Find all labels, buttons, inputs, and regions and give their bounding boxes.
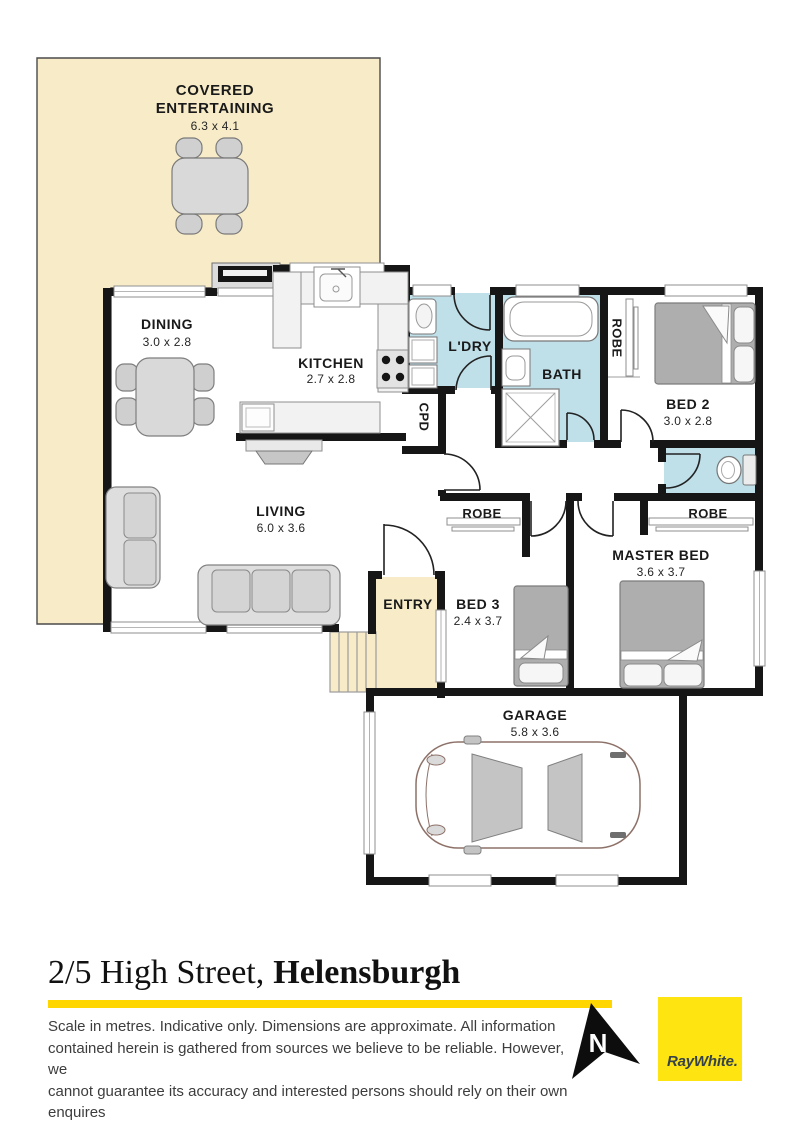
- vanity-icon: [502, 349, 530, 386]
- property-address: 2/5 High Street,Helensburgh: [48, 954, 460, 992]
- disclaimer-line: Scale in metres. Indicative only. Dimens…: [48, 1016, 568, 1038]
- living-dims: 6.0 x 3.6: [257, 521, 306, 535]
- kitchen-sink-icon: [314, 267, 360, 307]
- porch-stairs: [330, 632, 376, 692]
- master-label: MASTER BED: [612, 547, 710, 563]
- bed3-door: [531, 501, 566, 536]
- master-door: [578, 501, 613, 536]
- toilet-icon: [717, 455, 756, 485]
- north-letter: N: [589, 1028, 608, 1058]
- bed2-label: BED 2: [666, 396, 710, 412]
- entry-area: [374, 577, 438, 689]
- master-dims: 3.6 x 3.7: [637, 565, 686, 579]
- disclaimer-line: enquires: [48, 1102, 568, 1124]
- laundry-label: L'DRY: [448, 338, 492, 354]
- dining-table-set: [116, 358, 214, 436]
- covered-label-line1: COVERED: [176, 82, 254, 99]
- sofa-two-seat: [106, 487, 160, 588]
- bed3-dims: 2.4 x 3.7: [454, 614, 503, 628]
- disclaimer-text: Scale in metres. Indicative only. Dimens…: [48, 1016, 568, 1124]
- kitchen-label: KITCHEN: [298, 355, 364, 371]
- footer: 2/5 High Street,Helensburgh Scale in met…: [0, 940, 800, 1132]
- shower-icon: [502, 389, 559, 446]
- covered-dims: 6.3 x 4.1: [191, 119, 240, 133]
- bed2-door: [621, 410, 653, 442]
- garage-label: GARAGE: [503, 707, 567, 723]
- robe-bed3-label: ROBE: [462, 506, 501, 521]
- stove-icon: [377, 350, 408, 388]
- master-bed-icon: [620, 581, 704, 688]
- disclaimer-line: cannot guarantee its accuracy and intere…: [48, 1081, 568, 1103]
- accent-divider: [48, 1000, 612, 1008]
- covered-label-line2: ENTERTAINING: [156, 100, 275, 117]
- dining-label: DINING: [141, 316, 193, 332]
- bed2-icon: [655, 303, 755, 384]
- hall-door: [444, 454, 480, 490]
- raywhite-logo-text: RayWhite.: [667, 1053, 738, 1070]
- floorplan-drawing: COVERED ENTERTAINING 6.3 x 4.1 DINING 3.…: [0, 0, 800, 940]
- entry-label: ENTRY: [383, 596, 433, 612]
- kitchen-dims: 2.7 x 2.8: [307, 372, 356, 386]
- robe-master-label: ROBE: [688, 506, 727, 521]
- disclaimer-line: contained herein is gathered from source…: [48, 1038, 568, 1081]
- bed3-icon: [514, 586, 568, 686]
- robe-bed2-label: ROBE: [610, 318, 625, 357]
- living-label: LIVING: [256, 503, 306, 519]
- garage-dims: 5.8 x 3.6: [511, 725, 560, 739]
- bed2-dims: 3.0 x 2.8: [664, 414, 713, 428]
- address-suburb: Helensburgh: [273, 954, 460, 991]
- car-icon: [416, 736, 640, 854]
- laundry-fittings: [409, 299, 437, 388]
- entry-door: [384, 524, 434, 575]
- cpd-label: CPD: [417, 403, 432, 432]
- tv-unit: [246, 440, 322, 464]
- raywhite-logo: RayWhite.: [658, 997, 742, 1081]
- dining-dims: 3.0 x 2.8: [143, 335, 192, 349]
- north-arrow-icon: N: [565, 1000, 645, 1085]
- bath-label: BATH: [542, 366, 582, 382]
- bed3-label: BED 3: [456, 596, 500, 612]
- covered-entertaining-area: [37, 58, 380, 624]
- floorplan-page: COVERED ENTERTAINING 6.3 x 4.1 DINING 3.…: [0, 0, 800, 1132]
- sofa-three-seat: [198, 565, 340, 625]
- address-street: 2/5 High Street,: [48, 954, 264, 991]
